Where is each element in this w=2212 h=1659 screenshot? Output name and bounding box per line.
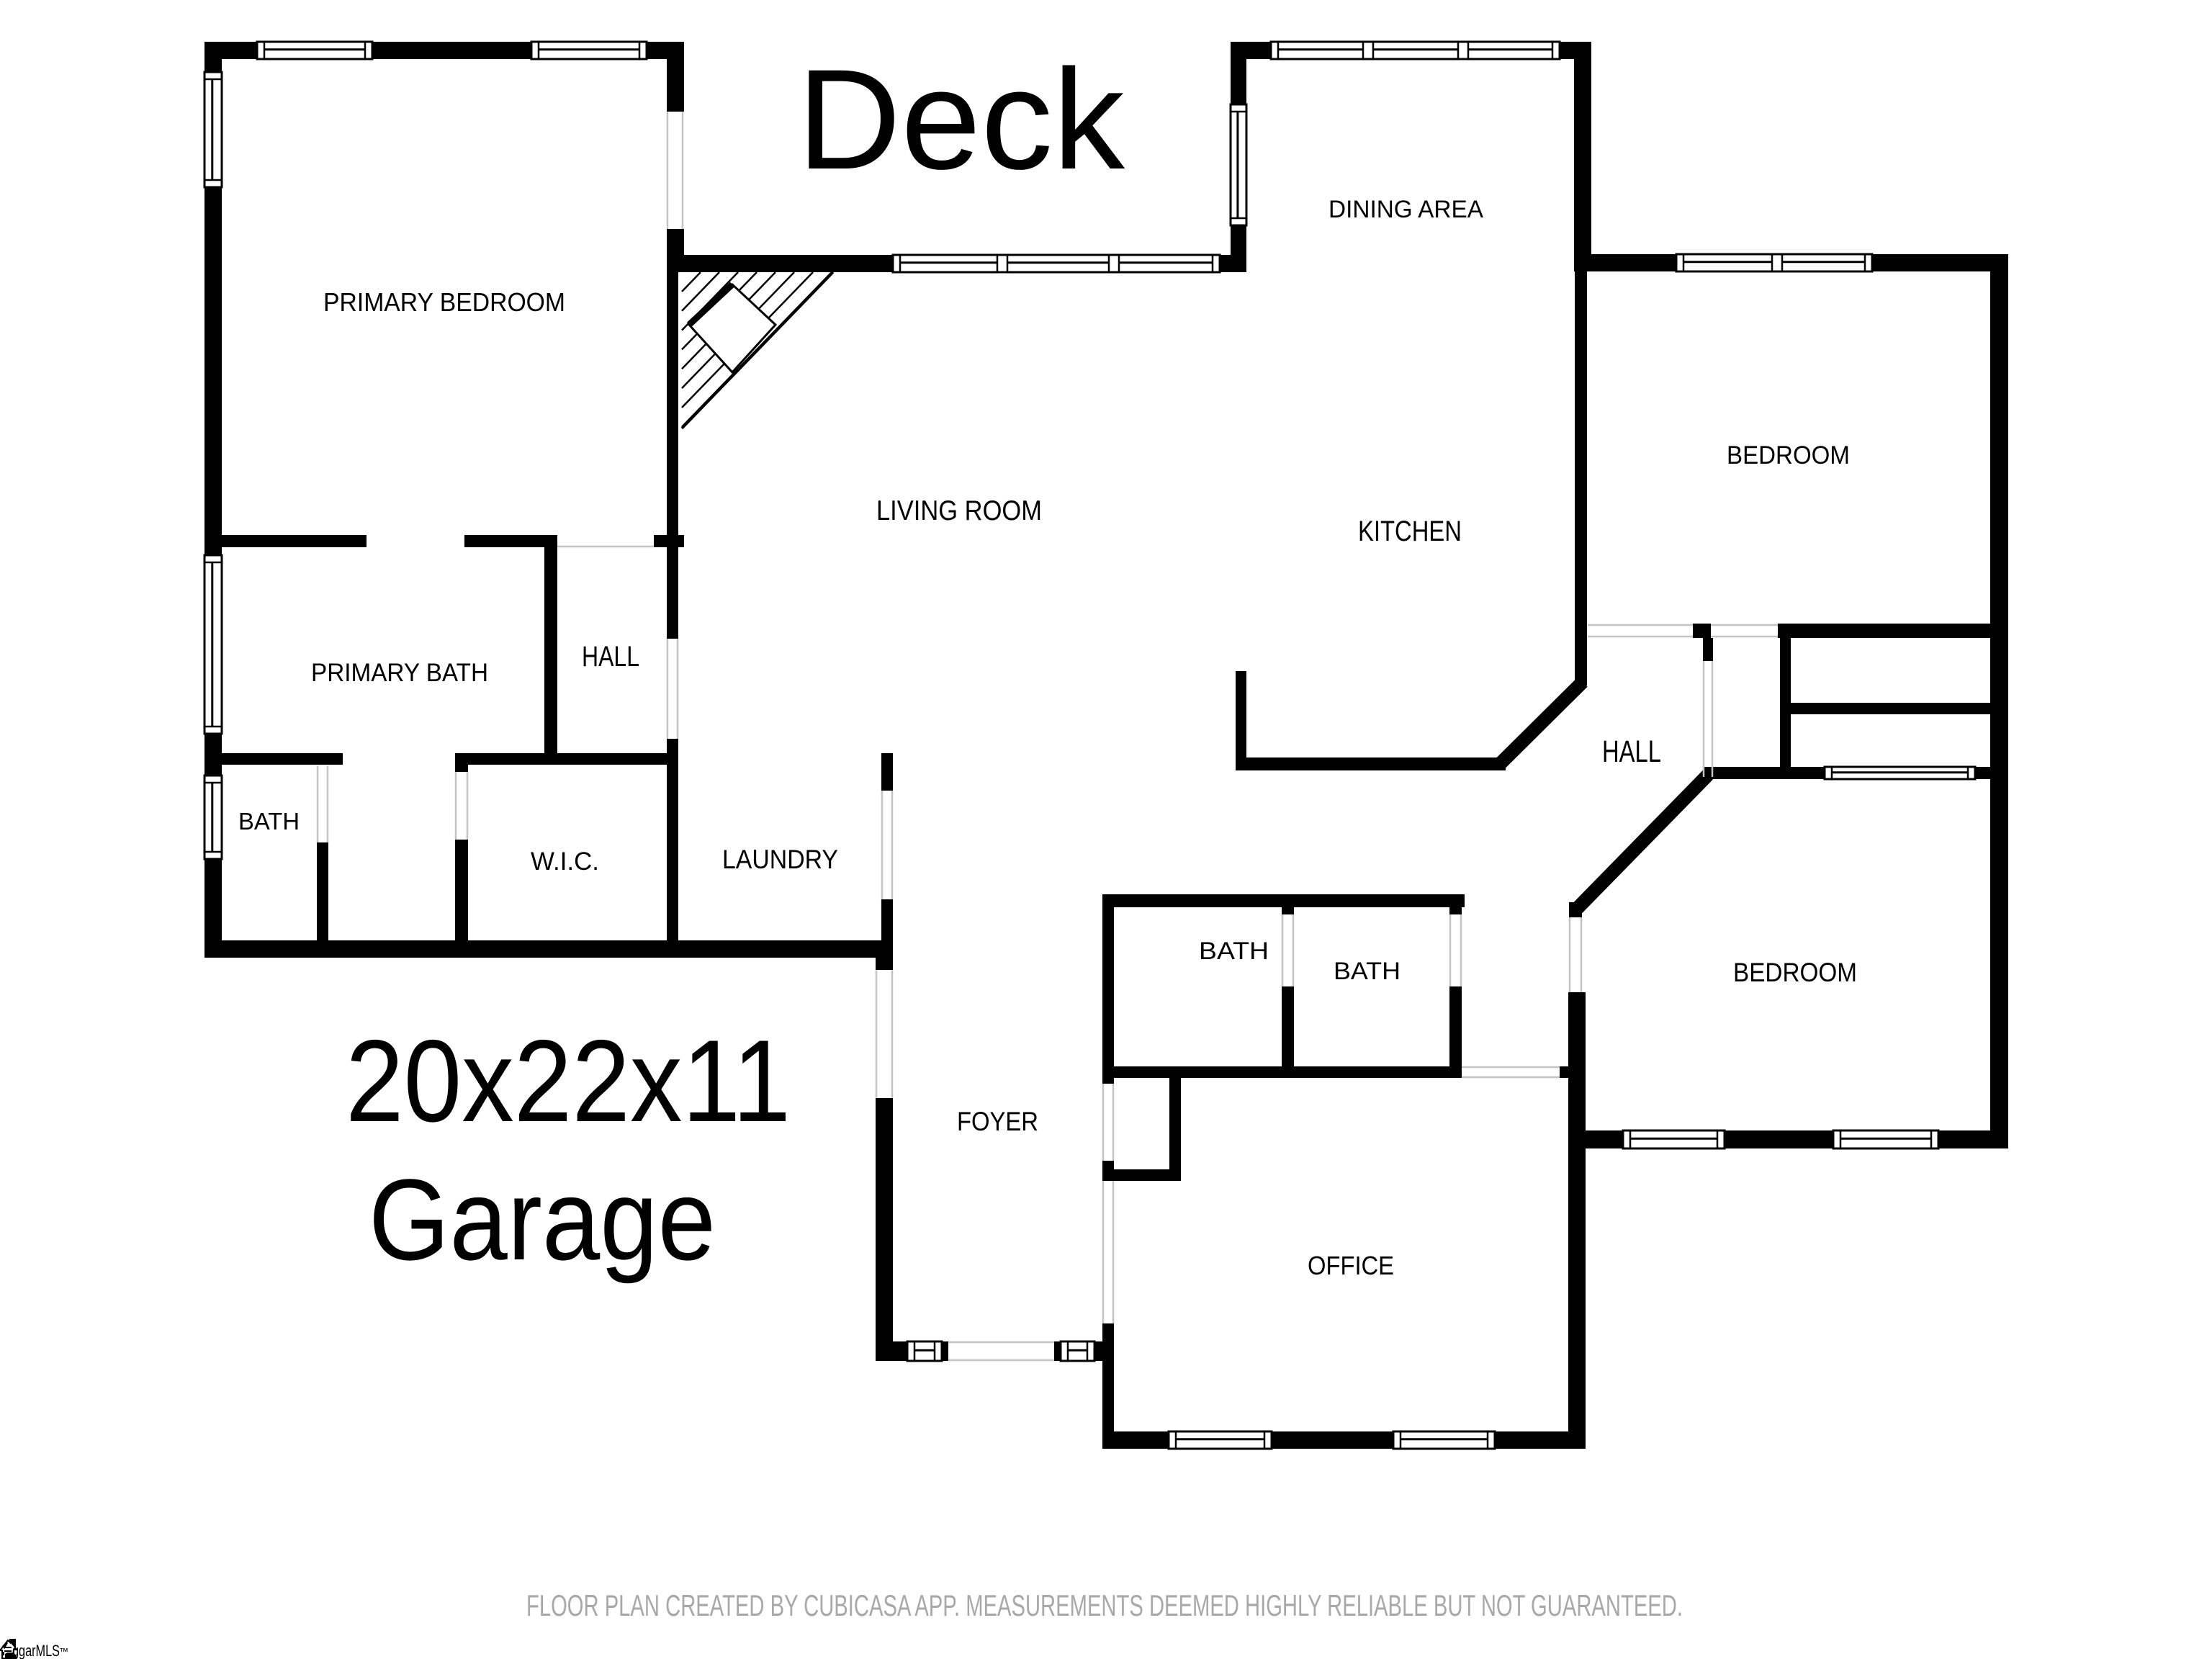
svg-text:PRIMARY BATH: PRIMARY BATH bbox=[311, 659, 488, 687]
svg-text:HALL: HALL bbox=[582, 641, 639, 673]
svg-text:BATH: BATH bbox=[1199, 938, 1269, 965]
svg-text:LIVING ROOM: LIVING ROOM bbox=[876, 495, 1042, 526]
svg-text:BATH: BATH bbox=[1334, 958, 1401, 985]
svg-text:KITCHEN: KITCHEN bbox=[1358, 516, 1462, 547]
svg-text:20x22x11: 20x22x11 bbox=[346, 1016, 791, 1146]
svg-text:PRIMARY BEDROOM: PRIMARY BEDROOM bbox=[323, 287, 565, 317]
svg-text:Deck: Deck bbox=[797, 40, 1125, 199]
svg-text:ggarMLS: ggarMLS bbox=[12, 1642, 60, 1659]
svg-text:BATH: BATH bbox=[238, 808, 300, 835]
svg-text:HALL: HALL bbox=[1602, 734, 1661, 769]
svg-text:Garage: Garage bbox=[369, 1155, 716, 1284]
svg-text:DINING AREA: DINING AREA bbox=[1328, 196, 1483, 223]
svg-text:BEDROOM: BEDROOM bbox=[1733, 958, 1857, 987]
svg-text:FOYER: FOYER bbox=[957, 1107, 1038, 1136]
svg-text:BEDROOM: BEDROOM bbox=[1727, 441, 1850, 469]
svg-text:FLOOR PLAN CREATED BY CUBICASA: FLOOR PLAN CREATED BY CUBICASA APP. MEAS… bbox=[526, 1588, 1683, 1622]
svg-text:LAUNDRY: LAUNDRY bbox=[722, 845, 838, 874]
svg-text:W.I.C.: W.I.C. bbox=[531, 848, 599, 876]
svg-text:OFFICE: OFFICE bbox=[1308, 1251, 1394, 1280]
svg-text:™: ™ bbox=[59, 1646, 68, 1657]
